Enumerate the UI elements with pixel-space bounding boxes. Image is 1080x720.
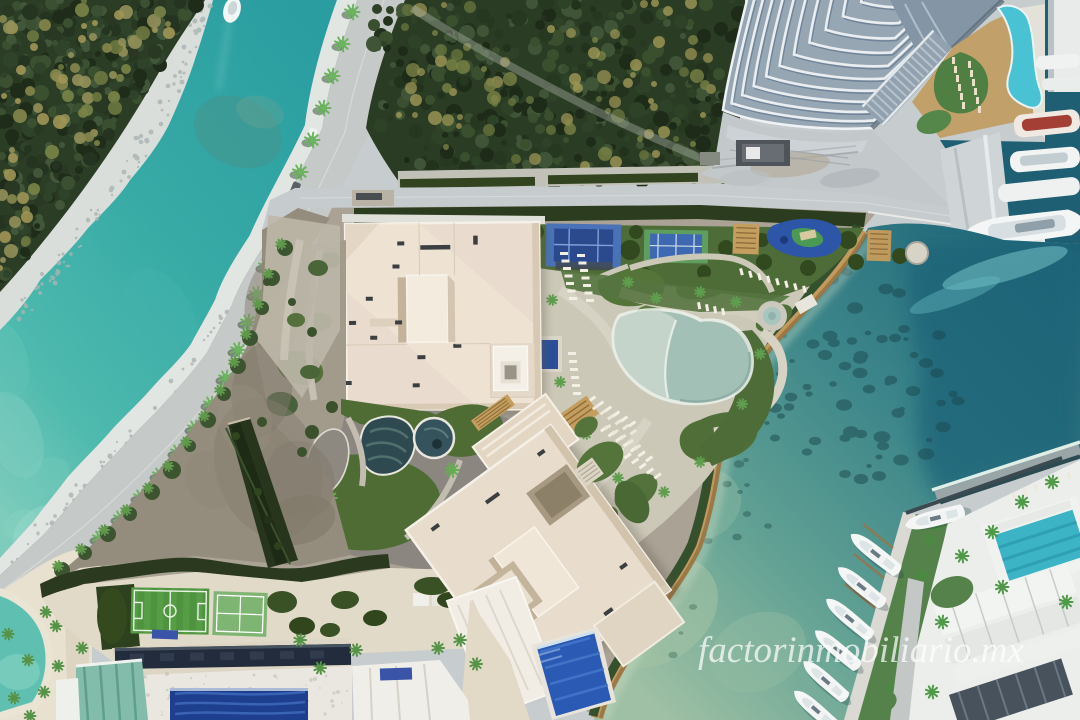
- svg-text:factorinmobiliario.mx: factorinmobiliario.mx: [698, 630, 1024, 671]
